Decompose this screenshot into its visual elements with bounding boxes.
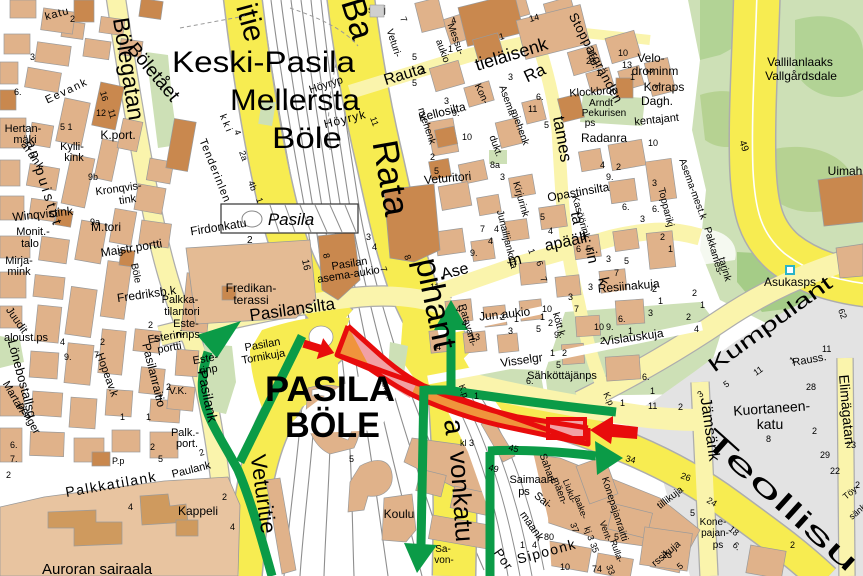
svg-text:5: 5: [154, 334, 159, 344]
svg-text:2: 2: [600, 336, 605, 346]
svg-text:4: 4: [128, 502, 133, 512]
svg-text:29: 29: [820, 450, 830, 460]
svg-text:Sa-: Sa-: [435, 544, 451, 555]
svg-text:1: 1: [158, 394, 163, 404]
svg-text:5: 5: [536, 324, 541, 334]
svg-text:6.: 6.: [618, 314, 626, 324]
svg-text:9.: 9.: [554, 330, 562, 340]
svg-text:2: 2: [247, 235, 253, 246]
svg-text:1: 1: [520, 540, 525, 550]
svg-text:5: 5: [614, 532, 619, 542]
svg-text:10: 10: [462, 132, 472, 142]
svg-text:1: 1: [146, 412, 151, 422]
svg-text:7: 7: [614, 268, 619, 278]
svg-text:2: 2: [652, 284, 657, 294]
svg-text:5: 5: [434, 166, 439, 176]
svg-text:1: 1: [514, 314, 519, 324]
svg-text:1: 1: [630, 72, 635, 82]
svg-text:5: 5: [586, 244, 591, 254]
svg-text:3: 3: [588, 282, 593, 292]
svg-text:ps: ps: [713, 540, 724, 551]
svg-text:ps: ps: [585, 118, 596, 129]
svg-text:2: 2: [548, 318, 553, 328]
svg-text:9b: 9b: [88, 172, 98, 182]
svg-text:4: 4: [462, 318, 467, 328]
svg-text:1: 1: [120, 412, 125, 422]
svg-text:V.K.: V.K.: [169, 386, 187, 397]
svg-text:1: 1: [474, 391, 479, 401]
svg-text:Monit.-: Monit.-: [16, 226, 50, 238]
svg-text:2: 2: [500, 312, 505, 322]
svg-text:2: 2: [420, 66, 425, 76]
svg-text:10: 10: [618, 48, 628, 58]
svg-text:3: 3: [508, 326, 513, 336]
svg-text:4: 4: [230, 522, 235, 532]
svg-text:3: 3: [508, 72, 513, 82]
svg-text:3: 3: [648, 308, 653, 318]
svg-text:12: 12: [96, 108, 106, 118]
svg-text:9.: 9.: [606, 172, 614, 182]
svg-text:3: 3: [30, 52, 35, 62]
svg-text:6.: 6.: [652, 204, 660, 214]
svg-text:8a: 8a: [490, 160, 500, 170]
svg-text:4: 4: [694, 324, 699, 334]
svg-text:4: 4: [456, 304, 461, 314]
svg-text:6.: 6.: [642, 372, 650, 382]
svg-text:2: 2: [660, 232, 665, 242]
svg-text:23: 23: [846, 440, 856, 450]
svg-text:1: 1: [596, 68, 601, 78]
svg-text:2: 2: [586, 56, 591, 66]
svg-text:9.: 9.: [452, 108, 460, 118]
svg-text:4: 4: [532, 540, 537, 550]
svg-text:5: 5: [556, 360, 561, 370]
svg-text:3: 3: [652, 178, 657, 188]
svg-text:Kone-: Kone-: [700, 517, 727, 528]
svg-text:5: 5: [540, 212, 545, 222]
svg-text:2: 2: [562, 348, 567, 358]
svg-text:9.: 9.: [64, 352, 72, 362]
svg-text:2: 2: [692, 288, 697, 298]
svg-text:Dagh.: Dagh.: [641, 94, 673, 108]
svg-text:4: 4: [60, 337, 65, 347]
svg-text:6: 6: [576, 244, 581, 254]
svg-text:Asukasps: Asukasps: [764, 275, 816, 289]
svg-text:7: 7: [574, 304, 579, 314]
svg-text:11: 11: [528, 104, 537, 114]
svg-text:5: 5: [412, 52, 417, 62]
svg-text:3: 3: [366, 232, 371, 242]
svg-text:11: 11: [648, 401, 657, 411]
svg-text:BÖLE: BÖLE: [285, 406, 380, 445]
svg-text:5: 5: [349, 454, 354, 464]
svg-text:2: 2: [616, 162, 621, 172]
svg-text:1: 1: [540, 312, 545, 322]
svg-text:2: 2: [430, 152, 435, 162]
svg-text:mink: mink: [7, 266, 31, 278]
svg-text:2: 2: [150, 442, 155, 452]
svg-text:4: 4: [494, 224, 499, 234]
svg-text:10: 10: [560, 562, 570, 572]
svg-text:katu: katu: [757, 416, 783, 432]
svg-text:talo: talo: [21, 238, 39, 250]
svg-text:1: 1: [628, 326, 633, 336]
svg-text:Pasila: Pasila: [268, 210, 314, 229]
svg-text:1: 1: [448, 44, 453, 54]
svg-text:2: 2: [686, 312, 691, 322]
svg-text:4: 4: [548, 226, 553, 236]
svg-text:1: 1: [620, 398, 625, 408]
svg-text:tink: tink: [118, 193, 137, 207]
svg-text:7: 7: [480, 224, 485, 234]
svg-text:22: 22: [830, 466, 840, 476]
svg-text:3: 3: [444, 96, 449, 106]
svg-text:7.: 7.: [10, 454, 18, 464]
svg-text:Palkka-: Palkka-: [162, 294, 199, 306]
svg-text:Auroran sairaala: Auroran sairaala: [42, 561, 153, 576]
svg-text:Vallgårdsdale: Vallgårdsdale: [765, 69, 837, 83]
svg-text:4: 4: [488, 236, 493, 246]
svg-text:11: 11: [430, 282, 439, 292]
svg-text:2: 2: [166, 382, 171, 392]
svg-text:74: 74: [592, 564, 602, 574]
svg-text:8: 8: [766, 434, 771, 444]
svg-text:2: 2: [812, 426, 817, 436]
svg-text:2: 2: [678, 402, 683, 412]
svg-text:kink: kink: [64, 152, 84, 164]
svg-text:5: 5: [544, 120, 549, 130]
svg-text:4: 4: [372, 242, 377, 252]
svg-text:Uimah: Uimah: [828, 164, 863, 178]
svg-text:vonkatu: vonkatu: [444, 450, 480, 543]
svg-text:Radanra: Radanra: [581, 131, 627, 145]
svg-text:4: 4: [436, 342, 441, 352]
svg-text:Velo-: Velo-: [637, 51, 664, 65]
svg-text:13: 13: [470, 332, 480, 342]
svg-text:ps: ps: [518, 486, 530, 498]
svg-text:6.: 6.: [14, 87, 22, 97]
svg-text:von-: von-: [434, 555, 453, 566]
svg-text:9.: 9.: [606, 322, 614, 332]
svg-text:terassi: terassi: [233, 293, 268, 307]
svg-text:kl 3: kl 3: [460, 438, 474, 448]
svg-text:6.: 6.: [10, 440, 18, 450]
svg-text:4: 4: [600, 160, 605, 170]
svg-text:port.: port.: [176, 438, 198, 450]
svg-text:rin: rin: [581, 245, 601, 265]
svg-text:13: 13: [622, 60, 632, 70]
svg-text:2: 2: [790, 540, 795, 550]
svg-text:1: 1: [550, 348, 555, 358]
svg-text:3: 3: [500, 172, 505, 182]
svg-text:3: 3: [640, 214, 645, 224]
svg-text:6.: 6.: [526, 376, 534, 386]
svg-text:Keski-Pasila: Keski-Pasila: [172, 46, 355, 79]
svg-text:5: 5: [624, 256, 629, 266]
svg-text:2: 2: [148, 320, 153, 330]
svg-text:6: 6: [580, 232, 585, 242]
svg-text:PASILA: PASILA: [265, 370, 395, 409]
svg-text:10: 10: [648, 138, 658, 148]
svg-text:1: 1: [650, 386, 655, 396]
svg-text:P.p: P.p: [112, 456, 124, 466]
svg-text:pajan-: pajan-: [701, 528, 729, 539]
svg-text:K.port.: K.port.: [100, 128, 135, 142]
svg-text:80: 80: [544, 532, 554, 542]
svg-text:1: 1: [700, 300, 705, 310]
svg-text:6.: 6.: [536, 92, 544, 102]
svg-text:7: 7: [94, 350, 99, 360]
svg-text:8: 8: [118, 248, 123, 258]
svg-text:2: 2: [6, 470, 11, 480]
svg-text:9.: 9.: [470, 248, 478, 258]
svg-text:Koiraps: Koiraps: [644, 80, 685, 94]
svg-text:9a: 9a: [90, 217, 100, 227]
svg-text:6.: 6.: [622, 202, 630, 212]
svg-text:10: 10: [594, 322, 604, 332]
svg-text:Sähköttäjänps: Sähköttäjänps: [527, 370, 597, 382]
svg-text:2: 2: [100, 337, 105, 347]
svg-text:5: 5: [412, 78, 417, 88]
svg-text:28: 28: [806, 382, 816, 392]
svg-text:5: 5: [158, 454, 163, 464]
svg-text:2: 2: [70, 14, 75, 24]
svg-text:Koulu: Koulu: [384, 507, 415, 521]
svg-text:Vallilanlaaks: Vallilanlaaks: [767, 55, 833, 69]
svg-text:5: 5: [690, 508, 695, 518]
svg-text:Kappeli: Kappeli: [178, 504, 218, 518]
svg-text:3: 3: [606, 254, 611, 264]
svg-text:tilantori: tilantori: [164, 306, 199, 318]
svg-text:1: 1: [668, 244, 673, 254]
svg-text:1: 1: [658, 296, 663, 306]
svg-text:2: 2: [222, 492, 227, 502]
svg-text:5 1: 5 1: [60, 122, 73, 132]
svg-text:23: 23: [662, 550, 672, 560]
svg-text:3: 3: [568, 292, 573, 302]
svg-text:11: 11: [822, 344, 831, 354]
